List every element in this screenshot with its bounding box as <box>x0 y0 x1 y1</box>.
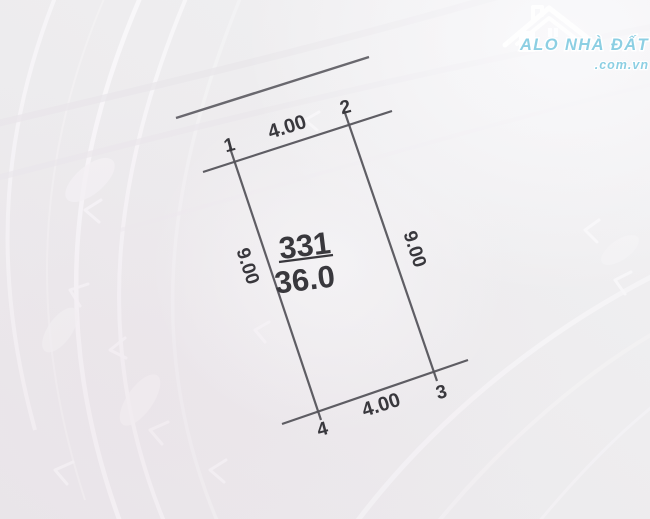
brand-name: ALO NHÀ ĐẤT <box>519 35 650 54</box>
brand-domain: .com.vn <box>595 58 649 72</box>
parcel-area: 36.0 <box>273 259 337 301</box>
scanned-plot-photo: 1 2 3 4 4.00 4.00 9.00 9.00 331 36.0 ALO… <box>0 0 650 519</box>
